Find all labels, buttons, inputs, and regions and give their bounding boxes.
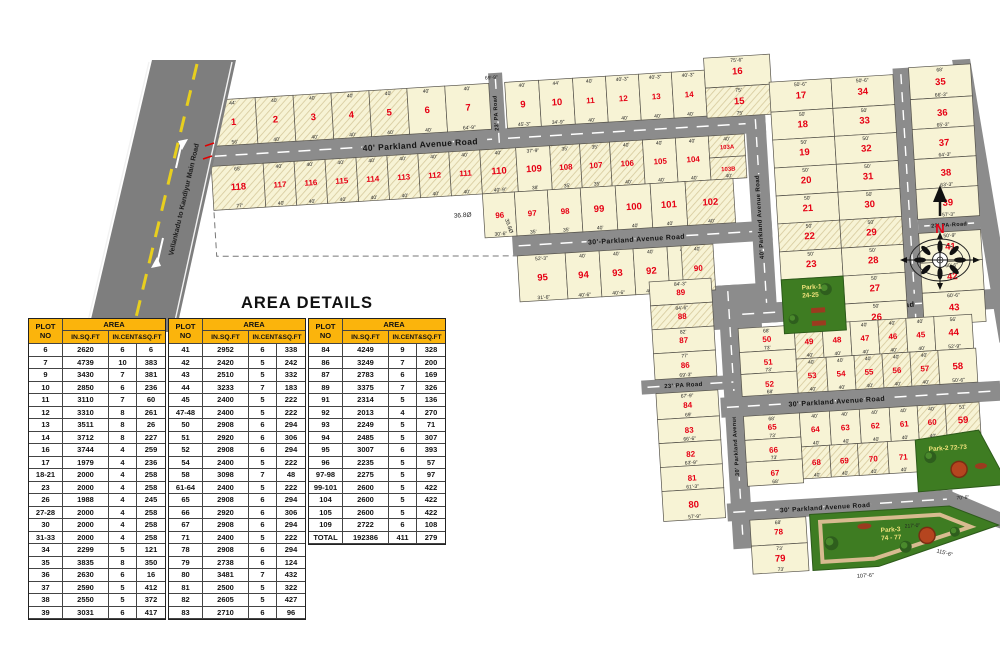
plot-dim-bottom: 40' xyxy=(621,115,628,121)
plot-number: 10 xyxy=(551,97,562,109)
table-cell: 43 xyxy=(169,369,203,382)
plot-number: 116 xyxy=(304,178,318,188)
table-cell: 2550 xyxy=(63,594,109,607)
table-cell: 350 xyxy=(137,557,165,570)
table-cell: 7 xyxy=(249,469,277,482)
plot-dim-bottom: 35' xyxy=(530,229,537,235)
plot-dim-top: 40' xyxy=(423,88,430,94)
total-cell: TOTAL xyxy=(309,532,343,545)
plot-32: 3250' xyxy=(835,133,899,165)
plot-dim-top: 50'-6" xyxy=(794,81,807,88)
dim-label: 70'-6" xyxy=(956,495,969,502)
plot-number: 99 xyxy=(593,204,604,216)
plot-number: 97 xyxy=(527,209,537,219)
plot-dim-top: 50' xyxy=(861,108,868,114)
plot-dim-bottom: 31'-6" xyxy=(537,294,550,301)
plot-dim-top: 84'-3" xyxy=(674,281,687,288)
table-cell: 65 xyxy=(169,494,203,507)
plot-dim-top: 40' xyxy=(495,150,502,156)
plot-number: 56 xyxy=(892,366,902,376)
plot-number: 17 xyxy=(795,90,806,102)
table-cell: 86 xyxy=(309,357,343,370)
table-cell: 83 xyxy=(169,607,203,620)
plot-number: 66 xyxy=(769,445,779,455)
dim-label: 217'-0" xyxy=(905,523,921,530)
plot-99: 9940' xyxy=(580,186,618,233)
table-cell: 3375 xyxy=(343,382,389,395)
table-cell: 2600 xyxy=(343,507,389,520)
table-cell: 2000 xyxy=(63,507,109,520)
plot-number: 58 xyxy=(952,361,963,373)
plot-dim-top: 40' xyxy=(921,353,928,359)
table-cell: 306 xyxy=(277,507,305,520)
table-cell: 6 xyxy=(249,507,277,520)
plot-47: 4740'40' xyxy=(850,320,880,356)
park-park-1: Park-124-25 xyxy=(781,276,846,334)
table-cell: 7 xyxy=(109,394,137,407)
table-cell: 92 xyxy=(309,407,343,420)
plot-dim-top: 40' xyxy=(461,152,468,158)
table-cell: 258 xyxy=(137,507,165,520)
plot-21: 2150' xyxy=(776,192,840,224)
plot-15: 1575'75' xyxy=(705,84,773,118)
table-cell: 5 xyxy=(109,582,137,595)
plot-dim-top: 50' xyxy=(871,275,878,281)
plot-53: 5340'40' xyxy=(796,357,828,393)
plot-dim-bottom: 40' xyxy=(340,197,347,203)
plot-dim-top: 40' xyxy=(271,98,278,104)
table-cell: 7 xyxy=(109,369,137,382)
table-cell: 61-64 xyxy=(169,482,203,495)
table-cell: 5 xyxy=(249,482,277,495)
plot-dim-top: 40' xyxy=(865,356,872,362)
plot-dim-top: 40'-3" xyxy=(616,76,629,83)
plot-57: 5740'40' xyxy=(910,350,940,386)
table-cell: 3511 xyxy=(63,419,109,432)
table-cell: 34 xyxy=(29,544,63,557)
plot-16: 1675'-6" xyxy=(704,54,772,88)
table-cell: 2605 xyxy=(203,594,249,607)
header-in-cent-sqft: IN.CENT&SQ.FT xyxy=(109,331,165,344)
plot-dim-top: 50' xyxy=(873,303,880,309)
plot-dim-top: 40' xyxy=(808,359,815,365)
plot-33: 3350' xyxy=(833,105,897,137)
plot-number: 55 xyxy=(864,367,874,377)
plot-dim-top: 40' xyxy=(917,319,924,325)
table-cell: 44 xyxy=(169,382,203,395)
park-label: Park-3 xyxy=(880,526,901,534)
plot-dim-top: 77' xyxy=(681,353,688,359)
table-cell: 9 xyxy=(389,344,417,357)
plot-18: 1850' xyxy=(771,108,835,140)
plot-dim-bottom: 40' xyxy=(667,221,674,227)
plot-number: 69 xyxy=(840,456,850,466)
plot-dim-top: 35' xyxy=(561,146,568,152)
plot-61: 6140'40' xyxy=(889,406,919,442)
plot-number: 113 xyxy=(397,172,411,182)
plot-dim-top: 40' xyxy=(871,410,878,416)
plot-number: 93 xyxy=(612,268,623,280)
table-cell: 10 xyxy=(109,357,137,370)
plot-number: 70 xyxy=(869,454,879,464)
table-cell: 71 xyxy=(417,419,445,432)
table-cell: 5 xyxy=(249,407,277,420)
table-cell: 259 xyxy=(137,444,165,457)
plot-dim-top: 40' xyxy=(518,83,525,89)
table-cell: 422 xyxy=(417,482,445,495)
plot-dim-bottom: 40' xyxy=(349,132,356,138)
plot-number: 32 xyxy=(861,143,872,155)
plot-number: 38 xyxy=(940,167,951,179)
plot-dim-bottom: 34'-9" xyxy=(552,119,565,126)
plot-14: 1440'-3"40' xyxy=(671,70,707,118)
plot-number: 28 xyxy=(868,255,879,267)
plot-number: 19 xyxy=(799,147,810,159)
plot-105: 10540'40' xyxy=(642,138,678,184)
table-cell: 7 xyxy=(249,569,277,582)
plot-number: 48 xyxy=(832,335,842,345)
table-cell: 236 xyxy=(137,382,165,395)
plot-number: 104 xyxy=(686,155,700,165)
table-cell: 5 xyxy=(109,544,137,557)
plot-number: 57 xyxy=(920,364,930,374)
table-cell: 6 xyxy=(109,569,137,582)
table-cell: 108 xyxy=(417,519,445,532)
plot-dim-top: 40' xyxy=(723,136,730,142)
table-cell: 12 xyxy=(29,407,63,420)
plot-number: 87 xyxy=(679,336,689,346)
table-cell: 294 xyxy=(277,544,305,557)
table-cell: 136 xyxy=(417,394,445,407)
table-cell: 2400 xyxy=(203,394,249,407)
table-cell: 11 xyxy=(29,394,63,407)
table-cell: 258 xyxy=(137,469,165,482)
plot-34: 3450'-6" xyxy=(831,75,895,109)
plot-29: 2950' xyxy=(840,216,904,248)
table-cell: 5 xyxy=(389,394,417,407)
table-cell: 270 xyxy=(417,407,445,420)
table-cell: 6 xyxy=(249,344,277,357)
table-cell: 222 xyxy=(277,407,305,420)
plot-number: 64 xyxy=(811,425,821,435)
plot-dim-top: 40' xyxy=(579,253,586,259)
table-cell: 393 xyxy=(417,444,445,457)
plot-104: 10440'40' xyxy=(675,136,711,182)
plot-dim-top: 44' xyxy=(552,81,559,87)
table-cell: 5 xyxy=(249,369,277,382)
park-label: Park-1 xyxy=(802,283,823,291)
plot-5: 540'40' xyxy=(369,88,410,137)
plot-number: 2 xyxy=(273,114,279,125)
plot-number: 88 xyxy=(678,312,688,322)
plot-dim-bottom: 40' xyxy=(273,137,280,143)
table-cell: 57 xyxy=(417,457,445,470)
plot-number: 106 xyxy=(620,159,634,169)
plot-number: 6 xyxy=(424,105,430,116)
table-cell: 6 xyxy=(249,519,277,532)
table-cell: 93 xyxy=(309,419,343,432)
plot-dim-bottom: 40' xyxy=(810,386,817,392)
plot-number: 101 xyxy=(661,199,678,211)
plot-dim-top: 40' xyxy=(689,138,696,144)
plot-67: 6768' xyxy=(746,459,803,487)
table-cell: 2000 xyxy=(63,469,109,482)
plot-number: 21 xyxy=(802,203,814,215)
plot-117: 11740'40' xyxy=(263,161,297,207)
plot-number: 89 xyxy=(676,288,686,298)
plot-dim-bottom: 40' xyxy=(842,471,849,477)
table-cell: 3310 xyxy=(63,407,109,420)
table-cell: 17 xyxy=(29,457,63,470)
table-cell: 87 xyxy=(309,369,343,382)
plot-number: 60 xyxy=(927,418,937,428)
plot-number: 103B xyxy=(721,166,736,173)
plot-19: 1950' xyxy=(773,136,837,168)
plot-number: 71 xyxy=(899,452,909,462)
table-cell: 4 xyxy=(109,532,137,545)
plot-dim-bottom: 45'-3" xyxy=(518,121,531,128)
plot-dim-top: 75'-6" xyxy=(730,57,743,64)
table-cell: 8 xyxy=(109,407,137,420)
plot-dim-bottom: 40' xyxy=(632,223,639,229)
table-cell: 2908 xyxy=(203,519,249,532)
plot-dim-bottom: 40' xyxy=(463,189,470,195)
plot-dim-top: 50' xyxy=(862,136,869,142)
table-cell: 169 xyxy=(417,369,445,382)
table-cell: 183 xyxy=(277,382,305,395)
table-cell: 6 xyxy=(389,369,417,382)
plot-dim-bottom: 40' xyxy=(814,472,821,478)
plot-number: 67 xyxy=(770,468,780,478)
table-cell: 3744 xyxy=(63,444,109,457)
table-cell: 4 xyxy=(109,444,137,457)
plot-dim-top: 65' xyxy=(234,166,241,172)
table-cell: 381 xyxy=(137,369,165,382)
plot-94: 9440'40'-6" xyxy=(565,251,602,299)
plot-dim-bottom: 40' xyxy=(901,467,908,473)
table-cell: 39 xyxy=(29,607,63,620)
plot-dim-bottom: 56' xyxy=(231,139,238,145)
table-cell: 7 xyxy=(389,357,417,370)
plot-dim-top: 68' xyxy=(775,520,782,526)
table-cell: 67 xyxy=(169,519,203,532)
plot-12: 1240'-3"40' xyxy=(605,74,641,122)
plot-118: 11865'77' xyxy=(211,163,266,211)
plot-number: 94 xyxy=(578,270,590,282)
table-cell: 78 xyxy=(169,544,203,557)
plot-102: 10240' xyxy=(685,179,736,226)
table-cell: 37 xyxy=(29,582,63,595)
plot-83: 8366'-6" xyxy=(658,416,721,444)
dim-label: 107'-6" xyxy=(857,573,874,580)
table-cell: 14 xyxy=(29,432,63,445)
plot-dim-top: 60'-6" xyxy=(947,292,960,299)
total-cell: 279 xyxy=(417,532,445,545)
table-cell: 13 xyxy=(29,419,63,432)
plot-dim-top: 50' xyxy=(802,167,809,173)
plot-42: 4260'-6" xyxy=(920,260,984,294)
plot-115: 11540'40' xyxy=(325,158,359,204)
plot-100: 10040' xyxy=(615,184,653,231)
plot-79: 7973'73' xyxy=(751,543,809,575)
table-cell: 2952 xyxy=(203,344,249,357)
plot-95: 9552'-3"31'-6" xyxy=(517,253,568,302)
table-cell: 2400 xyxy=(203,482,249,495)
park-park-2: Park-2 72-73 xyxy=(915,428,1000,491)
plot-80: 8057'-9" xyxy=(662,488,726,522)
plot-dim-bottom: 57'-3" xyxy=(942,212,955,219)
plot-dim-top: 50' xyxy=(867,220,874,226)
table-cell: 4 xyxy=(109,519,137,532)
table-cell: 81 xyxy=(169,582,203,595)
table-cell: 222 xyxy=(277,457,305,470)
table-cell: 306 xyxy=(277,432,305,445)
plot-number: 44 xyxy=(948,327,960,339)
plot-10: 1044'34'-9" xyxy=(539,78,576,126)
table-cell: 222 xyxy=(277,394,305,407)
plot-28: 2850' xyxy=(841,244,905,276)
table-cell: 5 xyxy=(249,394,277,407)
plot-87: 8782' xyxy=(652,326,715,354)
table-cell: 2000 xyxy=(63,519,109,532)
plot-58: 5850'-6" xyxy=(938,348,978,385)
area-table-1: PLOT NOAREAIN.SQ.FTIN.CENT&SQ.FT62620667… xyxy=(28,318,166,620)
table-cell: 5 xyxy=(249,357,277,370)
plot-number: 37 xyxy=(939,137,950,149)
table-cell: 36 xyxy=(29,569,63,582)
table-cell: 338 xyxy=(277,344,305,357)
plot-dim-top: 40' xyxy=(841,412,848,418)
table-cell: 6 xyxy=(29,344,63,357)
plot-31: 3150' xyxy=(836,160,900,192)
table-cell: 422 xyxy=(417,507,445,520)
table-cell: 5 xyxy=(389,507,417,520)
plot-number: 54 xyxy=(836,369,846,379)
plot-dim-top: 40' xyxy=(586,79,593,85)
plot-dim-top: 50' xyxy=(869,248,876,254)
table-cell: 200 xyxy=(417,357,445,370)
table-cell: 96 xyxy=(277,607,305,620)
plot-number: 96 xyxy=(495,211,505,221)
table-cell: 2249 xyxy=(343,419,389,432)
header-plot-no: PLOT NO xyxy=(309,319,343,344)
table-cell: 2908 xyxy=(203,544,249,557)
table-cell: 48 xyxy=(277,469,305,482)
plot-dim-bottom: 40' xyxy=(588,117,595,123)
plot-dim-top: 40' xyxy=(694,246,701,252)
plot-7: 740'64'-9" xyxy=(445,83,492,132)
plot-dim-top: 40' xyxy=(399,156,406,162)
plot-78: 7868' xyxy=(750,517,807,546)
table-cell: 54 xyxy=(169,457,203,470)
plot-number: 98 xyxy=(560,207,570,217)
plot-number: 18 xyxy=(797,119,808,131)
table-cell: 2783 xyxy=(343,369,389,382)
plot-number: 50 xyxy=(762,335,772,345)
plot-dim-top: 50' xyxy=(806,223,813,229)
plot-dim-top: 40' xyxy=(623,142,630,148)
plot-dim-bottom: 40' xyxy=(922,380,929,386)
table-cell: 2000 xyxy=(63,532,109,545)
plot-dim-top: 50'-9" xyxy=(943,233,956,240)
plot-dim-top: 40' xyxy=(347,93,354,99)
table-cell: 5 xyxy=(389,419,417,432)
plot-108: 10835'35' xyxy=(550,144,583,190)
plot-4: 440'40' xyxy=(331,91,372,140)
plot-dim-top: 51' xyxy=(959,404,966,410)
table-cell: 8 xyxy=(109,432,137,445)
plot-86: 8677'69'-3" xyxy=(653,350,717,380)
table-cell: 104 xyxy=(309,494,343,507)
plot-dim-bottom: 64'-9" xyxy=(463,125,476,132)
table-cell: 16 xyxy=(29,444,63,457)
plot-103B: 103B40' xyxy=(710,156,747,181)
plot-dim-top: 68' xyxy=(763,328,770,334)
table-cell: 322 xyxy=(277,582,305,595)
plot-number: 29 xyxy=(866,227,877,239)
table-cell: 124 xyxy=(277,557,305,570)
plot-number: 105 xyxy=(653,157,667,167)
table-cell: 6 xyxy=(109,607,137,620)
table-cell: 2630 xyxy=(63,569,109,582)
plot-112: 11240'40' xyxy=(418,152,452,198)
table-cell: 4 xyxy=(389,407,417,420)
table-cell: 91 xyxy=(309,394,343,407)
table-cell: 71 xyxy=(169,532,203,545)
table-cell: 4 xyxy=(109,482,137,495)
table-cell: 2510 xyxy=(203,369,249,382)
table-cell: 417 xyxy=(137,607,165,620)
table-cell: 6 xyxy=(137,344,165,357)
table-cell: 1988 xyxy=(63,494,109,507)
table-cell: 222 xyxy=(277,482,305,495)
plot-number: 110 xyxy=(491,165,507,177)
plot-number: 62 xyxy=(871,421,881,431)
plot-number: 3 xyxy=(310,112,316,123)
plot-54: 5440'40' xyxy=(826,356,856,392)
plot-dim-bottom: 40' xyxy=(871,469,878,475)
plot-35: 3568'66'-3" xyxy=(908,64,972,100)
table-cell: 6 xyxy=(389,444,417,457)
plot-63: 6340'40' xyxy=(829,409,861,445)
plot-dim-top: 40' xyxy=(893,354,900,360)
plot-number: 31 xyxy=(862,171,874,183)
table-cell: 326 xyxy=(417,382,445,395)
plot-number: 33 xyxy=(859,115,870,127)
header-area: AREA xyxy=(343,319,445,331)
table-cell: 242 xyxy=(277,357,305,370)
table-cell: 2275 xyxy=(343,469,389,482)
table-cell: 3430 xyxy=(63,369,109,382)
plot-dim-top: 40' xyxy=(430,154,437,160)
plot-dim-bottom: 40' xyxy=(597,225,604,231)
plot-number: 90 xyxy=(694,264,704,274)
area-table-3: PLOT NOAREAIN.SQ.FTIN.CENT&SQ.FT84424993… xyxy=(308,318,446,545)
table-cell: 4 xyxy=(109,469,137,482)
table-cell: 96 xyxy=(309,457,343,470)
plot-37: 3764'-3" xyxy=(912,126,976,160)
table-cell: 60 xyxy=(137,394,165,407)
plot-number: 92 xyxy=(646,265,657,277)
table-cell: 35 xyxy=(29,557,63,570)
table-cell: 79 xyxy=(169,557,203,570)
header-plot-no: PLOT NO xyxy=(29,319,63,344)
plot-46: 4640'40' xyxy=(878,318,908,354)
table-cell: 383 xyxy=(137,357,165,370)
plot-11: 1140'40' xyxy=(573,76,609,124)
table-cell: 294 xyxy=(277,519,305,532)
plot-2: 240'40' xyxy=(255,95,296,144)
